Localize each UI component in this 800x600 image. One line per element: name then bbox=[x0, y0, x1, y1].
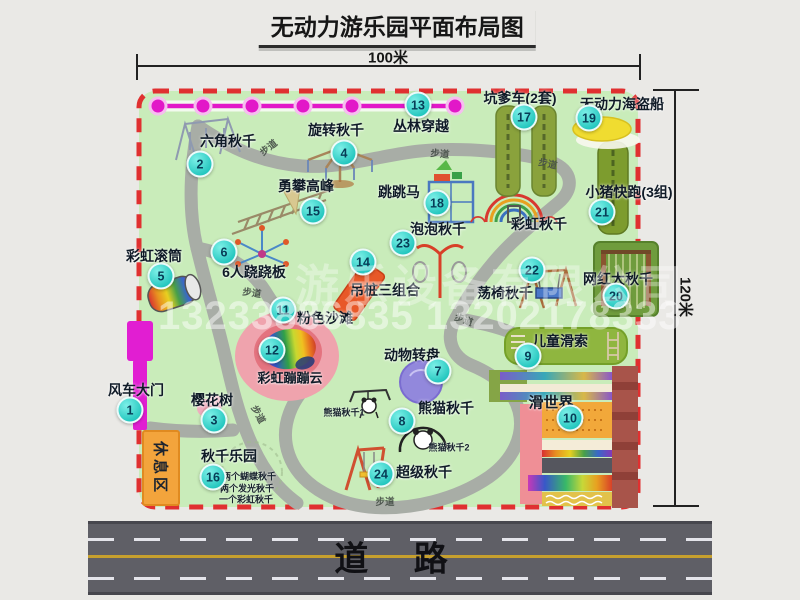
map-feature-label: 跳跳马 bbox=[378, 182, 420, 202]
map-feature-label: 泡泡秋千 bbox=[410, 219, 466, 239]
map-feature-label: 吊桩三组合 bbox=[350, 280, 420, 300]
map-feature-label: 彩虹秋千 bbox=[511, 214, 567, 234]
map-feature-label: 荡椅秋千 bbox=[477, 283, 533, 303]
map-feature-sublabel: 熊猫秋千1 bbox=[323, 406, 364, 419]
map-feature-badge: 22 bbox=[519, 257, 546, 284]
map-feature-badge: 9 bbox=[515, 343, 542, 370]
map-feature-badge: 19 bbox=[576, 105, 603, 132]
map-feature-badge: 2 bbox=[187, 151, 214, 178]
map-feature-label: 六角秋千 bbox=[200, 131, 256, 151]
map-feature-badge: 18 bbox=[424, 190, 451, 217]
map-feature-badge: 10 bbox=[557, 405, 584, 432]
map-feature-label: 儿童滑索 bbox=[532, 331, 588, 351]
map-feature-badge: 3 bbox=[201, 407, 228, 434]
map-feature-badge: 6 bbox=[211, 239, 238, 266]
map-feature-label: 彩虹蹦蹦云 bbox=[257, 368, 322, 387]
rest-area-label: 休息区 bbox=[151, 441, 172, 495]
map-feature-sublabel: 熊猫秋千2 bbox=[428, 441, 469, 454]
map-feature-badge: 11 bbox=[270, 297, 297, 324]
map-feature-sublabel: 一个彩虹秋千 bbox=[219, 493, 273, 506]
map-feature-badge: 5 bbox=[148, 263, 175, 290]
map-feature-badge: 8 bbox=[389, 408, 416, 435]
map-feature-label: 超级秋千 bbox=[396, 462, 452, 482]
map-feature-badge: 23 bbox=[390, 230, 417, 257]
map-feature-badge: 12 bbox=[259, 337, 286, 364]
path-label: 步道 bbox=[375, 494, 394, 508]
map-feature-badge: 20 bbox=[603, 283, 630, 310]
map-feature-label: 勇攀高峰 bbox=[278, 176, 334, 196]
map-feature-badge: 16 bbox=[200, 464, 227, 491]
map-feature-label: 丛林穿越 bbox=[393, 116, 449, 136]
road: 道 路 bbox=[88, 521, 712, 595]
path-label: 步道 bbox=[242, 284, 263, 301]
map-feature-badge: 14 bbox=[350, 249, 377, 276]
path-label: 步道 bbox=[430, 145, 450, 161]
road-label: 道 路 bbox=[334, 532, 465, 581]
map-feature-label: 熊猫秋千 bbox=[418, 398, 474, 418]
dimension-height-label: 120米 bbox=[676, 277, 697, 317]
map-feature-badge: 7 bbox=[425, 358, 452, 385]
map-feature-label: 旋转秋千 bbox=[308, 120, 364, 140]
map-feature-badge: 24 bbox=[368, 461, 395, 488]
map-feature-badge: 17 bbox=[511, 104, 538, 131]
map-feature-badge: 21 bbox=[589, 199, 616, 226]
map-feature-badge: 1 bbox=[117, 397, 144, 424]
page-title: 无动力游乐园平面布局图 bbox=[259, 8, 536, 48]
map-feature-badge: 15 bbox=[300, 198, 327, 225]
map-feature-label: 6人跷跷板 bbox=[222, 262, 286, 282]
map-feature-label: 粉色沙滩 bbox=[297, 308, 353, 328]
park-plan-image: 无动力游乐园平面布局图 100米 120米 bbox=[0, 0, 800, 600]
map-feature-badge: 13 bbox=[405, 92, 432, 119]
map-feature-badge: 4 bbox=[331, 140, 358, 167]
dimension-width-label: 100米 bbox=[368, 47, 408, 68]
